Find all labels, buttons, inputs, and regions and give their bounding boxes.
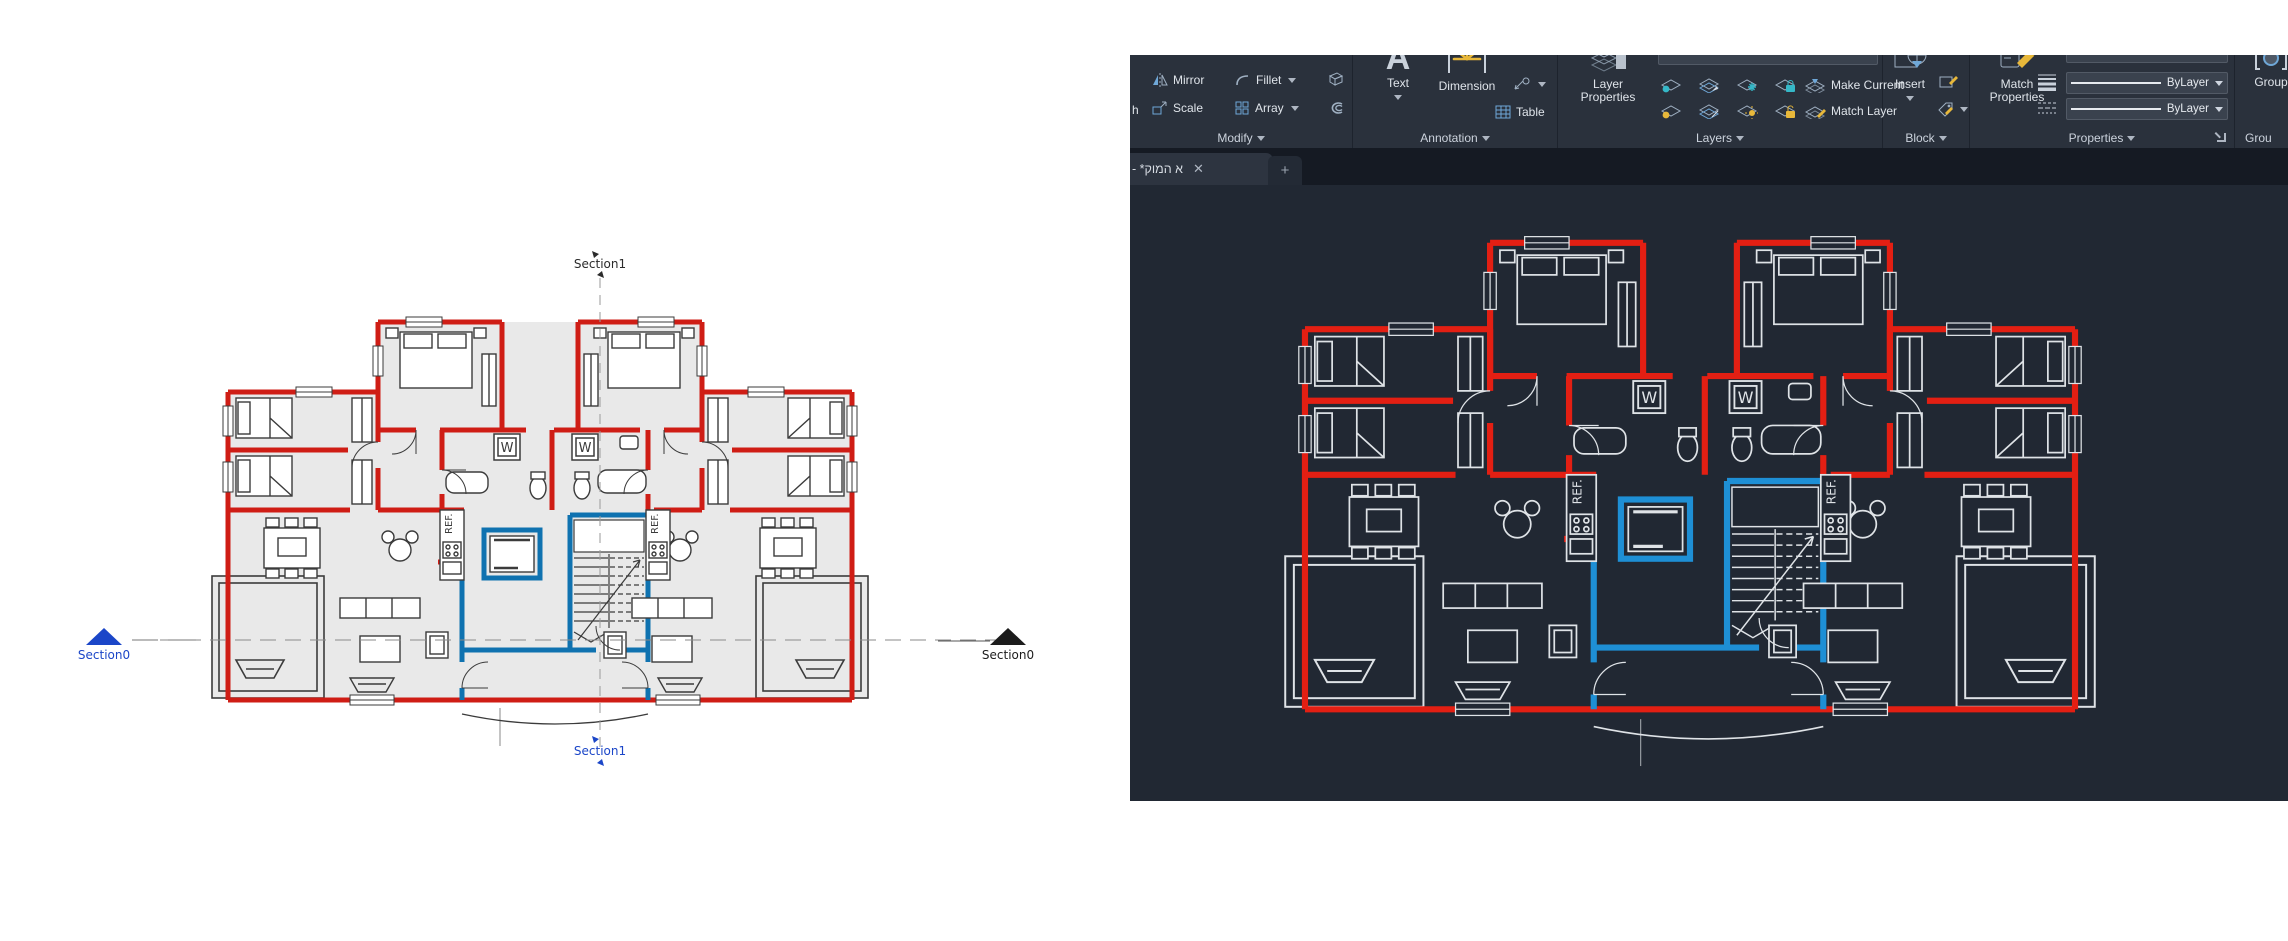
- group-icon: [2243, 55, 2288, 74]
- leader-icon: [1513, 77, 1533, 91]
- offset-button[interactable]: [1326, 101, 1349, 115]
- array-button[interactable]: Array: [1235, 101, 1299, 115]
- properties-panel-label[interactable]: Properties: [1970, 131, 2234, 145]
- block-panel-label[interactable]: Block: [1883, 131, 1969, 145]
- layer-properties-icon: [1572, 55, 1644, 76]
- dimension-icon: [1425, 55, 1509, 78]
- chevron-down-icon: [1939, 136, 1947, 141]
- chevron-down-icon: [1257, 136, 1265, 141]
- layer-freeze-button[interactable]: [1736, 77, 1763, 93]
- section-markers: Section1 Section1 Section0 Section0: [0, 0, 1100, 941]
- text-button[interactable]: A Text: [1375, 55, 1421, 103]
- file-tab-title: - *קומה א: [1132, 162, 1183, 176]
- svg-text:Section1: Section1: [574, 744, 626, 758]
- svg-text:Section0: Section0: [78, 648, 130, 662]
- modify-panel-label[interactable]: Modify: [1130, 131, 1352, 145]
- dimension-button[interactable]: Dimension: [1425, 55, 1509, 93]
- chevron-down-icon: [2215, 107, 2223, 112]
- file-tab-strip: - *קומה א ✕ +: [1130, 148, 2288, 185]
- lineweight-icon: [2036, 73, 2058, 91]
- object-color-combo-clipped[interactable]: [2066, 55, 2228, 63]
- ribbon-panel-annotation: A Text Dimension Table: [1353, 55, 1558, 148]
- array-icon: [1235, 101, 1250, 115]
- layer-bulb-on-icon: [1660, 77, 1682, 93]
- chevron-down-icon: [2127, 136, 2135, 141]
- chevron-down-icon: [2215, 81, 2223, 86]
- group-button[interactable]: Group: [2243, 55, 2288, 89]
- stretch-button-clipped[interactable]: h: [1132, 103, 1139, 117]
- scale-icon: [1152, 101, 1168, 115]
- fillet-icon: [1235, 73, 1251, 87]
- layer-bulb-off-icon: [1660, 103, 1682, 119]
- mirror-icon: [1152, 73, 1168, 87]
- layer-off-button[interactable]: [1660, 103, 1687, 119]
- chevron-down-icon[interactable]: [1291, 106, 1299, 111]
- ribbon-panel-groups: Group Grou: [2235, 55, 2288, 148]
- chevron-down-icon: [1394, 95, 1402, 100]
- layer-isolate-icon: [1698, 77, 1720, 93]
- fillet-button[interactable]: Fillet: [1235, 73, 1296, 87]
- layer-unlock-icon: [1774, 103, 1796, 119]
- chevron-down-icon: [1906, 96, 1914, 101]
- linetype-combo[interactable]: ByLayer: [2066, 98, 2228, 120]
- linetype-icon: [2036, 101, 2058, 117]
- chevron-down-icon[interactable]: [1960, 107, 1968, 112]
- ribbon-panel-layers: Layer Properties: [1558, 55, 1883, 148]
- lineweight-combo[interactable]: ByLayer: [2066, 72, 2228, 94]
- layer-thaw-button[interactable]: [1736, 103, 1763, 119]
- layer-isolate-button[interactable]: [1698, 77, 1725, 93]
- chevron-down-icon[interactable]: [1288, 78, 1296, 83]
- lineweight-sample: [2071, 82, 2161, 84]
- insert-button[interactable]: Insert: [1887, 55, 1933, 104]
- edit-block-button[interactable]: [1939, 73, 1964, 89]
- layer-lock-button[interactable]: [1774, 77, 1801, 93]
- svg-text:Section1: Section1: [574, 257, 626, 271]
- layer-lock-icon: [1774, 77, 1796, 93]
- text-icon: A: [1375, 55, 1421, 75]
- match-layer-icon: [1804, 103, 1826, 119]
- autocad-window: h Mirror Scale Fillet A: [1130, 55, 2288, 801]
- section0-left-marker: Section0: [78, 628, 196, 662]
- lineweight-button[interactable]: [2036, 73, 2063, 91]
- ribbon-panel-properties: Match Properties ByLayer: [1970, 55, 2235, 148]
- section1-top-marker: Section1: [574, 251, 626, 278]
- layer-unlock-button[interactable]: [1774, 103, 1801, 119]
- table-icon: [1495, 105, 1511, 119]
- layer-unisolate-button[interactable]: [1698, 103, 1725, 119]
- chevron-down-icon: [1482, 136, 1490, 141]
- linetype-button[interactable]: [2036, 101, 2063, 117]
- edit-block-icon: [1939, 73, 1959, 89]
- drawing-canvas[interactable]: [1130, 185, 2288, 801]
- new-tab-button[interactable]: +: [1268, 156, 1302, 185]
- table-button[interactable]: Table: [1495, 105, 1545, 119]
- ribbon: h Mirror Scale Fillet A: [1130, 55, 2288, 148]
- ribbon-panel-modify: h Mirror Scale Fillet A: [1130, 55, 1353, 148]
- offset-icon: [1326, 101, 1344, 115]
- layer-unisolate-icon: [1698, 103, 1720, 119]
- attribute-tag-icon: [1937, 101, 1955, 117]
- explode-button[interactable]: [1326, 71, 1349, 87]
- chevron-down-icon: [1736, 136, 1744, 141]
- section0-right-marker: Section0: [938, 628, 1034, 662]
- reference-drawing: Section1 Section1 Section0 Section0: [0, 0, 1100, 941]
- insert-block-icon: [1887, 55, 1933, 76]
- file-tab[interactable]: - *קומה א ✕: [1130, 153, 1273, 185]
- layer-state-combo-clipped[interactable]: [1658, 55, 1878, 65]
- explode-icon: [1326, 71, 1344, 87]
- scale-button[interactable]: Scale: [1152, 101, 1203, 115]
- layer-thaw-icon: [1736, 103, 1758, 119]
- layer-on-button[interactable]: [1660, 77, 1687, 93]
- annotation-panel-label[interactable]: Annotation: [1353, 131, 1557, 145]
- chevron-down-icon[interactable]: [1538, 82, 1546, 87]
- layer-properties-button[interactable]: Layer Properties: [1572, 55, 1644, 104]
- layers-panel-label[interactable]: Layers: [1558, 131, 1882, 145]
- make-current-icon: [1804, 77, 1826, 93]
- leader-button[interactable]: [1513, 77, 1546, 91]
- layer-freeze-icon: [1736, 77, 1758, 93]
- groups-panel-label[interactable]: Grou: [2235, 131, 2288, 145]
- ribbon-panel-block: Insert Block: [1883, 55, 1970, 148]
- close-tab-icon[interactable]: ✕: [1193, 161, 1204, 177]
- edit-attributes-button[interactable]: [1937, 101, 1968, 117]
- svg-text:Section0: Section0: [982, 648, 1034, 662]
- floor-plan-dark: [1270, 228, 2110, 801]
- linetype-sample: [2071, 108, 2161, 110]
- mirror-button[interactable]: Mirror: [1152, 73, 1204, 87]
